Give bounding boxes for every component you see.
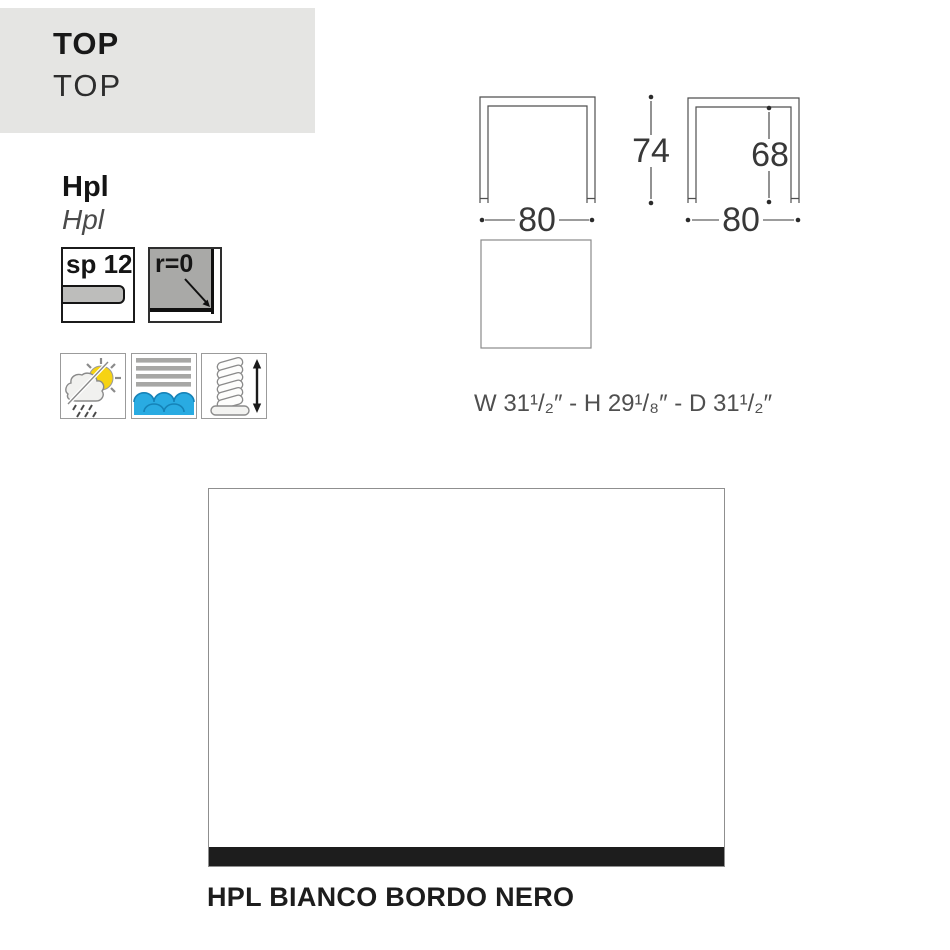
imperial-dimensions: W 31¹/₂″ - H 29¹/₈″ - D 31¹/₂″ [474,390,772,418]
technical-drawings: 74 80 68 80 [455,80,830,370]
weather-resistant-badge [60,353,126,419]
radius-arrow-icon [182,275,216,311]
page-subtitle: TOP [53,68,122,104]
top-view-drawing [481,240,591,348]
finish-swatch [208,488,725,867]
water-resistant-badge [131,353,197,419]
dim-front-height-label: 74 [632,132,670,170]
swatch-edge-strip [209,847,724,866]
finish-caption: HPL BIANCO BORDO NERO [207,882,574,913]
adjustable-foot-icon [202,354,266,418]
page-header: TOP TOP [0,8,315,133]
radius-spec-box: r=0 [148,247,222,323]
panel-thickness-icon [61,285,125,304]
material-name: Hpl [62,171,109,204]
material-name-italic: Hpl [62,204,104,236]
adjustable-feet-badge [201,353,267,419]
dim-side-height-label: 68 [751,136,789,174]
dim-front-width-label: 80 [518,201,556,239]
thickness-spec-box: sp 12 [61,247,135,323]
page-title: TOP [53,26,119,62]
waves-icon [132,354,196,418]
catalog-page: TOP TOP Hpl Hpl sp 12 r=0 [0,0,950,950]
front-view-drawing [480,97,595,203]
dim-side-width-label: 80 [722,201,760,239]
radius-label: r=0 [155,250,193,279]
thickness-label: sp 12 [66,249,133,280]
weather-icon [61,354,125,418]
